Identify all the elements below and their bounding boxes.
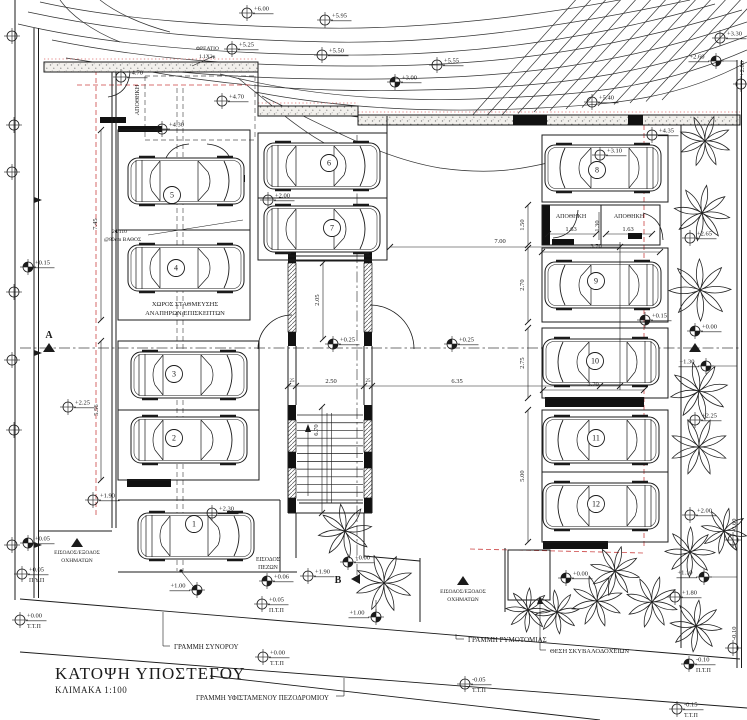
- elevation-value: +0.00: [702, 324, 717, 331]
- boundary-wall: [44, 62, 258, 72]
- parking-space-number-10: 10: [587, 353, 604, 370]
- number-value: 5: [170, 191, 174, 200]
- door-swing-arc: [108, 72, 130, 97]
- dimension-value: 2.50: [325, 378, 336, 385]
- contour-line: [646, 0, 745, 102]
- plan-label: 2Φ110: [112, 229, 127, 235]
- elevation-value: +0.00: [270, 650, 285, 657]
- contour-line: [52, 10, 742, 66]
- parking-space-number-4: 4: [168, 260, 185, 277]
- parking-space-number-5: 5: [164, 187, 181, 204]
- elevation-value: -0.60: [731, 518, 738, 532]
- plan-label: ΠΕΖΩΝ: [258, 565, 279, 571]
- tree: [591, 547, 639, 595]
- elevation-datum: Τ.Τ.Π: [27, 624, 41, 630]
- parking-space-number-2: 2: [166, 430, 183, 447]
- elevation-value: +2.30: [219, 506, 234, 513]
- tree-canopy: [627, 577, 677, 627]
- parking-bay-outline: [508, 550, 550, 600]
- parking-space-number-7: 7: [324, 220, 341, 237]
- elevation-value: +2.25: [75, 400, 90, 407]
- number-value: 12: [592, 500, 600, 509]
- elevation-marker: [6, 284, 22, 300]
- hatched-wall: [288, 468, 296, 498]
- elevation-marker: +0.25: [444, 336, 479, 352]
- elevation-marker: +5.95: [317, 12, 352, 28]
- dimension-value: 3.70: [587, 381, 598, 388]
- elevation-marker: +1.00: [170, 582, 206, 598]
- wall-poche: [288, 405, 296, 420]
- dimension-value: 25: [290, 379, 296, 384]
- parking-space-number-8: 8: [589, 162, 606, 179]
- elevation-value: +0.06: [274, 574, 290, 581]
- elevation-marker: +0.15: [637, 312, 672, 328]
- elevation-datum: Π.Τ.Π: [696, 668, 712, 674]
- elevation-marker: [4, 28, 20, 44]
- tree-canopy: [672, 420, 726, 474]
- number-value: 9: [594, 277, 598, 286]
- hatched-wall: [288, 263, 296, 332]
- car-7: [264, 205, 380, 253]
- dimension-value: 7.45: [92, 218, 99, 229]
- elevation-value: +0.05: [29, 567, 44, 574]
- elevation-value: +0.05: [269, 597, 284, 604]
- elevation-value: +2.00: [697, 508, 712, 515]
- elevation-value: +2.65: [697, 231, 712, 238]
- dimension-value: 1.30: [594, 220, 601, 231]
- wall-poche: [100, 117, 126, 123]
- elevation-marker: +4.70: [214, 93, 249, 109]
- elevation-value: -0.10: [731, 626, 738, 640]
- contour-line: [28, 0, 690, 42]
- drawing-title: ΚΑΤΟΨΗ ΥΠΟΣΤΕΓΟΥ: [55, 664, 246, 684]
- elevation-marker: +2.60: [689, 53, 725, 69]
- elevation-value: +6.00: [254, 6, 269, 13]
- wall-poche: [364, 405, 372, 420]
- elevation-value: +0.00: [27, 613, 42, 620]
- number-value: 3: [172, 370, 176, 379]
- elevation-marker: -0.10Π.Τ.Π: [681, 656, 716, 674]
- wall-poche: [364, 452, 372, 468]
- tree: [669, 259, 731, 321]
- elevation-marker: [6, 422, 22, 438]
- plan-label: ΕΙΣΟΔΟΣ/ΕΞΟΔΟΣ: [54, 550, 100, 556]
- elevation-marker: [6, 117, 22, 133]
- elevation-marker: +0.05: [20, 535, 55, 551]
- section-letter: B: [335, 575, 342, 586]
- elevation-value: +2.25: [702, 413, 717, 420]
- door-swing-arc: [258, 315, 292, 349]
- wall-poche: [364, 498, 372, 513]
- contour-line: [60, 0, 120, 42]
- contour-line: [100, 0, 170, 32]
- dimension-value: 2.75: [519, 357, 526, 368]
- plan-label: 1.1Χ2μ: [199, 54, 216, 60]
- wall-poche: [628, 115, 643, 125]
- wall-poche: [513, 115, 547, 125]
- car-2: [128, 244, 244, 292]
- elevation-marker: +3.00: [387, 74, 422, 90]
- elevation-datum: Π.Τ.Π: [269, 608, 285, 614]
- elevation-value: +0.00: [573, 571, 588, 578]
- tree-canopy: [670, 600, 722, 652]
- elevation-value: +0.00: [355, 555, 370, 562]
- elevation-marker: +0.00Τ.Τ.Π: [12, 612, 47, 630]
- elevation-marker: -0.10: [725, 626, 741, 656]
- number-value: 2: [172, 434, 176, 443]
- elevation-value: +4.35: [659, 128, 674, 135]
- plan-label: ΑΠΟΘΗΚΗ: [135, 84, 141, 115]
- elevation-value: +0.15: [652, 313, 667, 320]
- parking-space-number-11: 11: [588, 430, 605, 447]
- title-block: ΚΑΤΟΨΗ ΥΠΟΣΤΕΓΟΥ ΚΛΙΜΑΚΑ 1:100: [55, 664, 246, 695]
- direction-arrow: [457, 576, 469, 585]
- plan-label: ΓΡΑΜΜΗ ΥΦΙΣΤΑΜΕΝΟΥ ΠΕΖΟΔΡΟΜΙΟΥ: [196, 694, 329, 702]
- elevation-value: +1.80: [682, 590, 697, 597]
- car-3: [131, 351, 247, 399]
- elevation-value: +5.55: [444, 58, 459, 65]
- contour-line: [220, 50, 747, 100]
- plan-label: ΘΕΣΗ ΣΚΥΒΑΛΟΔΟΧΕΙΩΝ: [550, 648, 629, 655]
- plan-label: ΕΙΣΟΔΟΣ: [256, 557, 281, 563]
- hatched-wall: [364, 420, 372, 452]
- number-value: 7: [330, 224, 334, 233]
- wall-poche: [542, 205, 550, 245]
- staircase: [297, 415, 363, 500]
- parking-space-number-6: 6: [321, 155, 338, 172]
- dimension-line: [148, 220, 243, 235]
- elevation-value: +1.90: [315, 569, 330, 576]
- dimension-value: 5.56: [93, 404, 100, 416]
- car-body: [264, 206, 380, 252]
- plan-label: ΑΠΟΘΗΚΗ: [614, 214, 645, 220]
- tree-canopy: [591, 547, 639, 595]
- elevation-marker: +5.25: [224, 41, 259, 57]
- elevation-datum: Π.Υ.Π: [29, 578, 45, 584]
- tree: [506, 588, 550, 632]
- plan-label: @80cm ΒΑΘΟΣ: [104, 237, 141, 243]
- elevation-value: +4.70: [229, 94, 244, 101]
- elevation-value: +3.30: [727, 31, 742, 38]
- site-plan-drawing: 7.455.562.056.702.506.357.001.502.702.75…: [0, 0, 747, 720]
- tree: [670, 600, 722, 652]
- elevation-datum: Τ.Τ.Π: [270, 661, 284, 667]
- tree: [357, 556, 412, 611]
- tree-canopy: [669, 259, 731, 321]
- tree-canopy: [671, 363, 728, 420]
- dimension-value: 1.50: [519, 219, 526, 230]
- elevation-value: +5.50: [329, 48, 344, 55]
- elevation-marker: +0.00Τ.Τ.Π: [255, 649, 290, 667]
- dimension-value: 2.05: [314, 294, 321, 305]
- elevation-marker: -0.15Τ.Τ.Π: [669, 701, 704, 719]
- elevation-marker: +0.00: [687, 323, 722, 339]
- plan-label: ΓΡΑΜΜΗ ΡΥΜΟΤΟΜΙΑΣ: [468, 636, 547, 644]
- elevation-value: +3.00: [402, 75, 417, 82]
- elevation-value: +4.30: [169, 122, 184, 129]
- elevation-value: +0.15: [35, 260, 50, 267]
- number-value: 10: [591, 357, 599, 366]
- elevation-value: +3.10: [607, 148, 622, 155]
- dimension-value: 1.63: [622, 226, 633, 233]
- plan-label: ΓΡΑΜΜΗ ΣΥΝΟΡΟΥ: [174, 643, 239, 651]
- elevation-marker: [4, 537, 20, 553]
- car-1: [128, 157, 244, 205]
- dimension-value: 1.63: [565, 226, 576, 233]
- dimension-value: 6.70: [313, 424, 320, 435]
- dimension-value: 6.35: [451, 378, 462, 385]
- direction-arrow: [71, 538, 83, 547]
- elevation-value: +0.25: [340, 337, 355, 344]
- dimension-value: 5.00: [519, 470, 526, 481]
- elevation-value: -0.10: [696, 657, 710, 664]
- elevation-value: +1.00: [171, 583, 186, 590]
- tree-canopy: [702, 509, 747, 554]
- contour-line: [470, 0, 580, 118]
- number-value: 6: [327, 159, 331, 168]
- elevation-marker: +0.00: [558, 570, 593, 586]
- elevation-value: +5.40: [599, 95, 614, 102]
- elevation-value: +1.00: [350, 610, 365, 617]
- section-letter: A: [45, 330, 53, 341]
- parking-space-number-3: 3: [166, 366, 183, 383]
- elevation-value: +4.70: [128, 70, 143, 77]
- elevation-value: +0.05: [35, 536, 50, 543]
- wall-poche: [288, 332, 296, 346]
- elevation-value: +2.00: [275, 193, 290, 200]
- elevation-marker: [4, 352, 20, 368]
- contour-line: [598, 0, 700, 106]
- dimension-value: 7.00: [494, 238, 505, 245]
- elevation-marker: +0.05Π.Υ.Π: [14, 566, 49, 584]
- elevation-marker: +1.90: [300, 568, 335, 584]
- wall-poche: [552, 239, 574, 245]
- wall-poche: [288, 452, 296, 468]
- car-body: [128, 158, 244, 204]
- elevation-marker: +6.00: [239, 5, 274, 21]
- elevation-value: +1.90: [100, 493, 115, 500]
- site-boundary-line: [20, 599, 740, 659]
- plan-label: ΦΡΕΑΤΙΟ: [196, 46, 219, 52]
- tree: [702, 509, 747, 554]
- car-4: [131, 416, 247, 464]
- elevation-marker: [4, 164, 20, 180]
- car-body: [131, 417, 247, 463]
- elevation-marker: +2.00: [682, 507, 717, 523]
- number-value: 1: [192, 520, 196, 529]
- elevation-marker: +0.05Π.Τ.Π: [254, 596, 289, 614]
- elevation-marker: -0.05Τ.Τ.Π: [457, 676, 492, 694]
- dimension-value: 3.70: [590, 243, 601, 250]
- wall-poche: [364, 332, 372, 346]
- elevation-value: +2.60: [690, 54, 705, 61]
- number-value: 4: [174, 264, 178, 273]
- parking-space-number-9: 9: [588, 273, 605, 290]
- elevation-value: +1.10: [678, 570, 693, 577]
- hatched-wall: [364, 468, 372, 498]
- elevation-marker: +1.90: [85, 492, 120, 508]
- tree: [672, 420, 726, 474]
- boundary-wall: [258, 106, 358, 116]
- elevation-marker: +0.25: [325, 336, 360, 352]
- floor-plan: 7.455.562.056.702.506.357.001.502.702.75…: [0, 0, 747, 720]
- plan-label: ΧΩΡΟΣ ΣΤΑΘΜΕΥΣΗΣ: [152, 301, 219, 308]
- number-value: 8: [595, 166, 599, 175]
- section-arrow: [351, 574, 360, 584]
- plan-label: ΕΙΣΟΔΟΣ/ΕΞΟΔΟΣ: [440, 589, 486, 595]
- elevation-datum: Τ.Τ.Π: [684, 713, 698, 719]
- plan-label: ΟΧΗΜΑΤΩΝ: [61, 558, 93, 564]
- plan-label: ΑΠΟΘΗΚΗ: [556, 214, 587, 220]
- elevation-marker: +0.06: [259, 573, 294, 589]
- elevation-value: +1.30: [680, 359, 695, 366]
- elevation-value: +5.25: [239, 42, 254, 49]
- car-body: [128, 245, 244, 291]
- parking-space-number-12: 12: [588, 496, 605, 513]
- elevation-value: -0.15: [684, 702, 698, 709]
- elevation-marker: +1.00: [349, 609, 385, 625]
- boundary-wall: [358, 115, 740, 125]
- elevation-value: -0.05: [472, 677, 486, 684]
- elevation-marker: +5.55: [429, 57, 464, 73]
- dimension-value: 25: [366, 379, 372, 384]
- structure-line: [364, 556, 420, 561]
- hatched-wall: [364, 263, 372, 332]
- elevation-marker: +1.80: [667, 589, 702, 605]
- plan-label: ΟΧΗΜΑΤΩΝ: [447, 597, 479, 603]
- car-body: [131, 352, 247, 398]
- elevation-datum: Τ.Τ.Π: [472, 688, 486, 694]
- space-numbers: 543216789101112: [164, 155, 606, 533]
- direction-arrow: [43, 343, 55, 352]
- elevation-marker: +1.10: [677, 569, 713, 585]
- tree-canopy: [357, 556, 412, 611]
- contour-line: [18, 4, 715, 55]
- parking-space-number-1: 1: [186, 516, 203, 533]
- door-swing-arc: [370, 305, 414, 349]
- dimension-value: 2.70: [519, 279, 526, 290]
- elevation-marker: +2.80: [733, 61, 747, 92]
- elevation-value: +5.95: [332, 13, 347, 20]
- tree-canopy: [506, 588, 550, 632]
- elevation-value: +2.80: [739, 61, 746, 76]
- drawing-scale: ΚΛΙΜΑΚΑ 1:100: [55, 685, 246, 695]
- elevation-marker: +2.25: [60, 399, 95, 415]
- elevation-marker: +0.15: [20, 259, 55, 275]
- wall-poche: [288, 498, 296, 513]
- plan-label: ΑΝΑΠΗΡΩΝ/ΕΠΙΣΚΕΠΤΩΝ: [145, 310, 225, 317]
- hatched-wall: [288, 420, 296, 452]
- elevation-value: +0.25: [459, 337, 474, 344]
- tree: [627, 577, 677, 627]
- direction-arrow: [689, 343, 701, 352]
- tree: [671, 363, 728, 420]
- number-value: 11: [592, 434, 600, 443]
